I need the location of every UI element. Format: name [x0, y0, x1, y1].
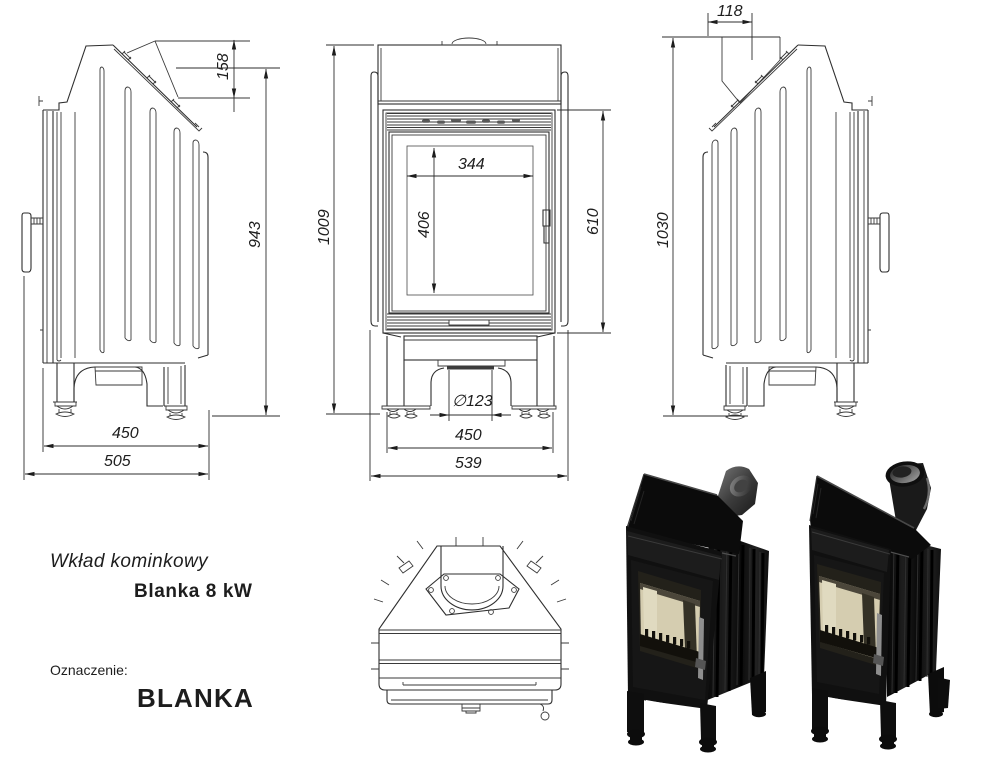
svg-text:Blanka 8 kW: Blanka 8 kW — [134, 581, 253, 602]
svg-text:406: 406 — [416, 211, 433, 238]
svg-text:505: 505 — [104, 453, 131, 470]
svg-text:344: 344 — [458, 156, 485, 173]
svg-text:610: 610 — [585, 208, 602, 235]
svg-text:1030: 1030 — [655, 212, 672, 248]
svg-text:Wkład kominkowy: Wkład kominkowy — [50, 551, 209, 572]
svg-text:1009: 1009 — [316, 209, 333, 245]
svg-text:Oznaczenie:: Oznaczenie: — [50, 662, 128, 678]
svg-text:943: 943 — [247, 221, 264, 248]
svg-text:BLANKA: BLANKA — [137, 683, 254, 713]
svg-text:450: 450 — [455, 427, 482, 444]
svg-text:118: 118 — [717, 3, 743, 20]
svg-text:450: 450 — [112, 425, 139, 442]
svg-text:158: 158 — [215, 53, 232, 80]
svg-text:539: 539 — [455, 455, 482, 472]
svg-text:∅123: ∅123 — [452, 393, 493, 410]
